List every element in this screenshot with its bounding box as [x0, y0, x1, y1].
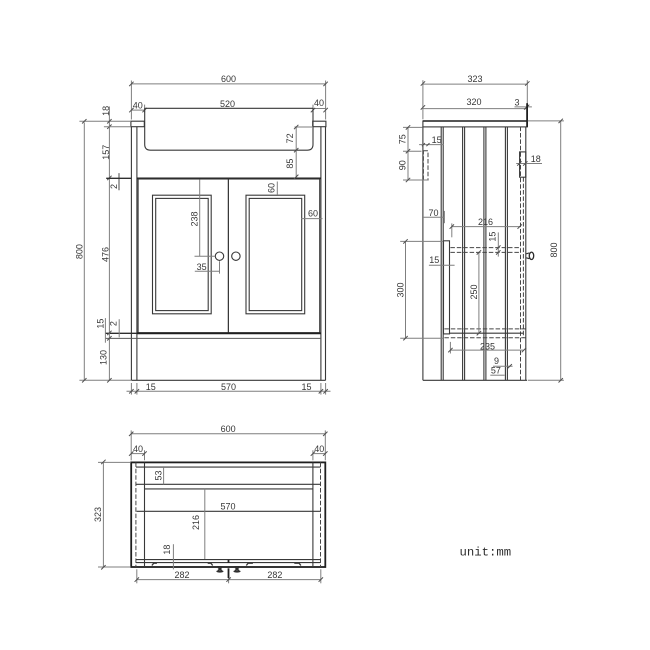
svg-text:323: 323	[93, 507, 103, 522]
svg-text:3: 3	[514, 97, 519, 107]
svg-text:282: 282	[267, 570, 282, 580]
svg-text:90: 90	[398, 160, 408, 170]
svg-text:18: 18	[101, 106, 111, 116]
svg-text:70: 70	[428, 208, 438, 218]
svg-text:15: 15	[301, 382, 311, 392]
svg-text:157: 157	[101, 145, 111, 160]
svg-text:300: 300	[396, 282, 406, 297]
svg-text:18: 18	[162, 545, 172, 555]
svg-text:570: 570	[220, 501, 235, 511]
svg-text:570: 570	[221, 382, 236, 392]
svg-text:53: 53	[153, 470, 163, 480]
svg-text:40: 40	[314, 98, 324, 108]
svg-text:250: 250	[469, 284, 479, 299]
svg-text:235: 235	[480, 341, 495, 351]
svg-text:15: 15	[488, 232, 498, 242]
svg-text:18: 18	[531, 154, 541, 164]
svg-text:216: 216	[478, 217, 493, 227]
svg-text:35: 35	[197, 262, 207, 272]
svg-text:40: 40	[133, 100, 143, 110]
svg-text:9: 9	[494, 356, 499, 366]
svg-text:2: 2	[109, 184, 119, 189]
svg-text:130: 130	[99, 350, 109, 365]
svg-text:800: 800	[549, 242, 559, 257]
svg-text:800: 800	[75, 244, 85, 259]
svg-text:unit:mm: unit:mm	[460, 546, 512, 560]
svg-text:476: 476	[101, 247, 111, 262]
svg-text:15: 15	[95, 319, 105, 329]
svg-text:216: 216	[191, 515, 201, 530]
svg-text:57: 57	[491, 366, 501, 376]
svg-text:520: 520	[220, 99, 235, 109]
svg-text:320: 320	[466, 97, 481, 107]
svg-text:323: 323	[467, 74, 482, 84]
svg-text:15: 15	[432, 135, 442, 145]
svg-text:85: 85	[285, 159, 295, 169]
svg-text:15: 15	[429, 255, 439, 265]
svg-text:238: 238	[189, 211, 199, 226]
svg-text:40: 40	[133, 444, 143, 454]
svg-text:15: 15	[146, 382, 156, 392]
svg-text:60: 60	[308, 208, 318, 218]
svg-text:72: 72	[285, 133, 295, 143]
svg-text:60: 60	[267, 183, 277, 193]
svg-text:2: 2	[108, 321, 118, 326]
svg-text:282: 282	[174, 570, 189, 580]
svg-text:600: 600	[221, 74, 236, 84]
svg-text:40: 40	[314, 444, 324, 454]
svg-text:600: 600	[221, 424, 236, 434]
svg-text:75: 75	[398, 134, 408, 144]
